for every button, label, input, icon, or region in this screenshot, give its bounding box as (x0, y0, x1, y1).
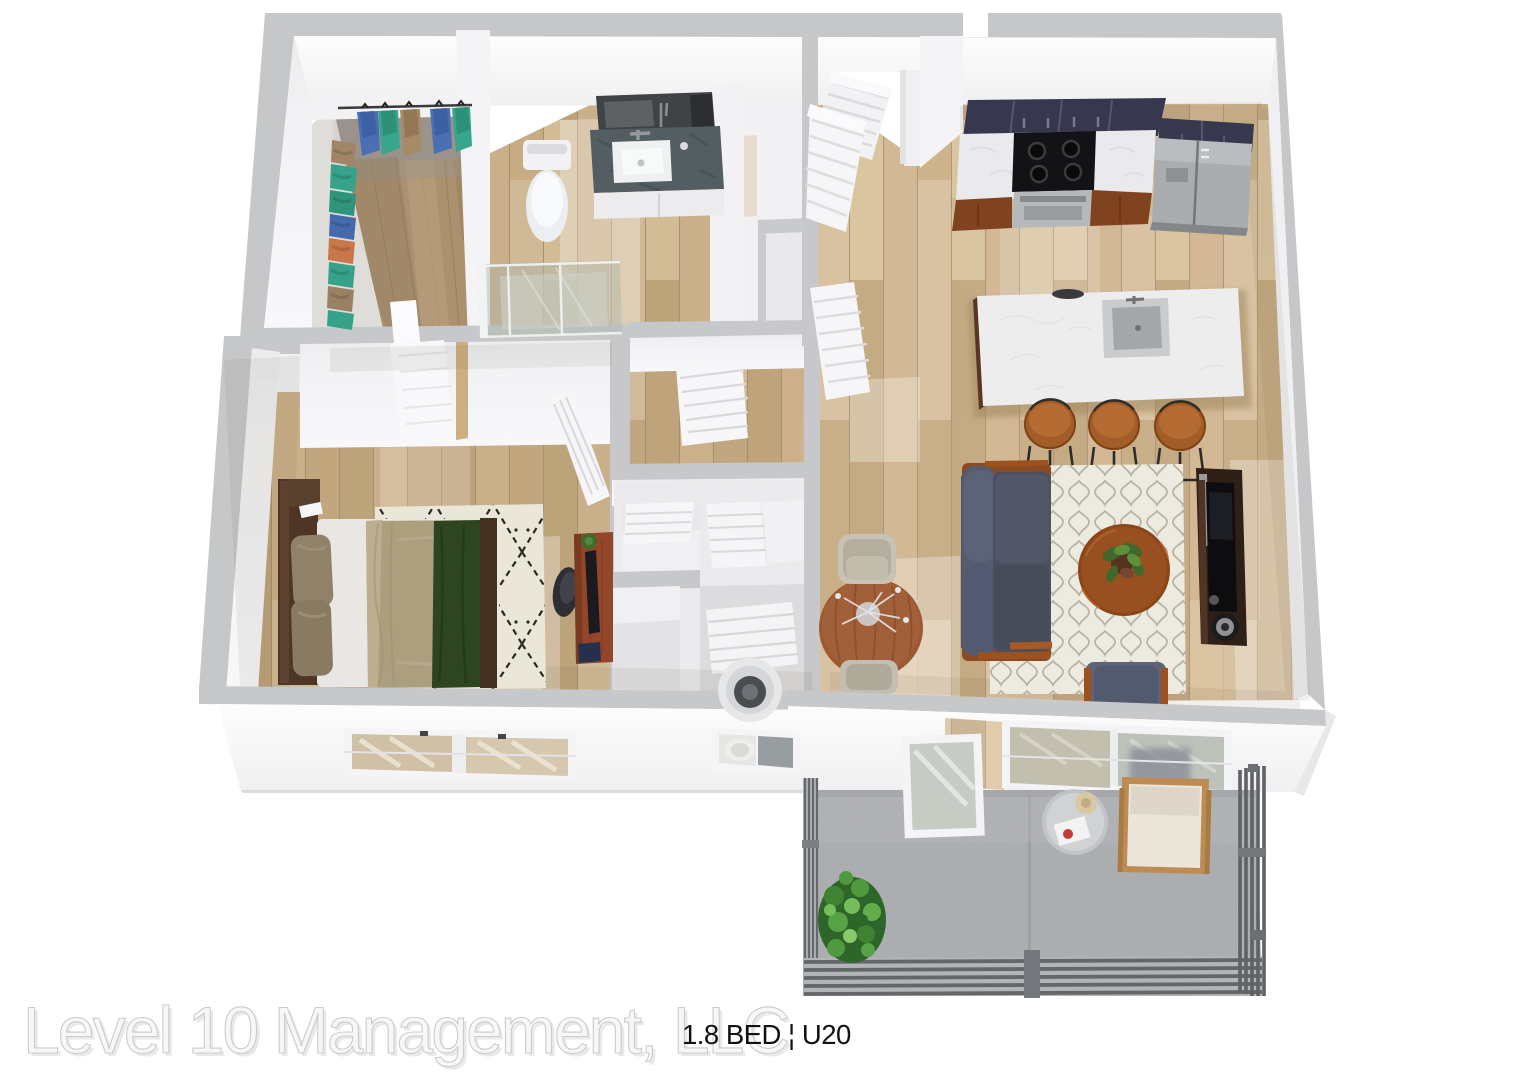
svg-text:Level 10 Management, LLC: Level 10 Management, LLC (23, 993, 788, 1067)
svg-text:1.8 BED ¦ U20: 1.8 BED ¦ U20 (682, 1019, 851, 1050)
